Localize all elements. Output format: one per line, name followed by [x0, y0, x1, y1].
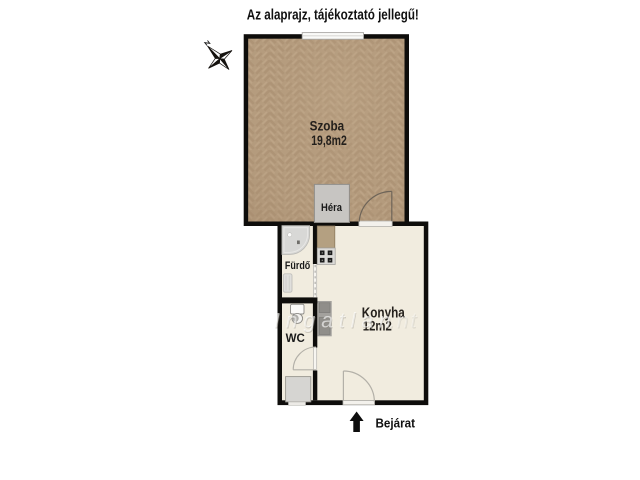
svg-text:Az alaprajz, tájékoztató jelle: Az alaprajz, tájékoztató jellegű!: [247, 8, 419, 24]
svg-text:Szoba: Szoba: [310, 118, 345, 133]
svg-text:Héra: Héra: [321, 202, 343, 214]
svg-text:19,8m2: 19,8m2: [311, 133, 347, 148]
svg-text:Fürdő: Fürdő: [285, 260, 311, 272]
svg-text:WC: WC: [286, 333, 305, 345]
svg-text:.nt: .nt: [389, 310, 418, 333]
svg-text:Bejárat: Bejárat: [376, 416, 416, 431]
svg-text:Ingatlan: Ingatlan: [274, 310, 397, 333]
